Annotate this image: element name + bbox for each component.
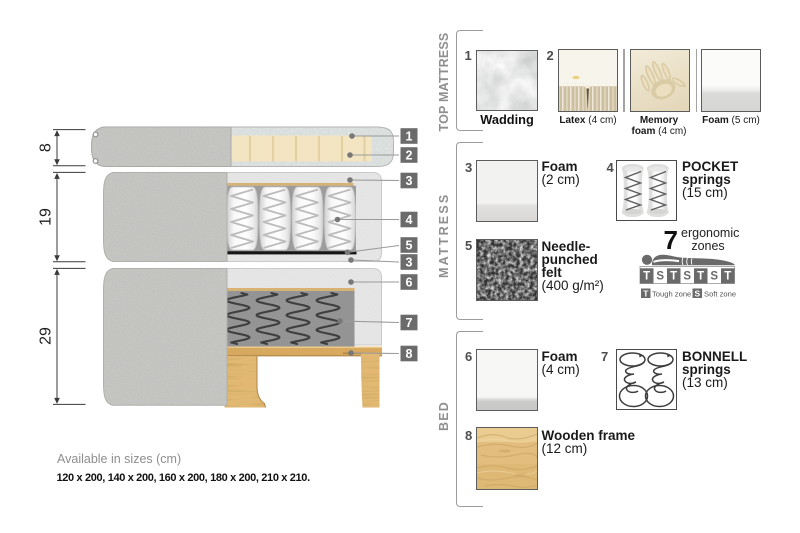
svg-text:1: 1 (406, 130, 413, 144)
svg-text:S: S (710, 271, 718, 283)
svg-text:2: 2 (406, 149, 413, 163)
svg-text:Tough zone: Tough zone (652, 289, 691, 298)
svg-text:T: T (697, 271, 704, 283)
svg-text:3: 3 (406, 256, 413, 270)
svg-text:8: 8 (406, 347, 413, 361)
svg-text:Soft zone: Soft zone (704, 289, 736, 298)
svg-text:S: S (683, 271, 691, 283)
svg-text:S: S (656, 271, 664, 283)
svg-text:T: T (643, 271, 650, 283)
svg-text:4: 4 (406, 213, 413, 227)
svg-text:T: T (724, 271, 731, 283)
svg-text:8: 8 (38, 143, 55, 152)
svg-text:7: 7 (406, 316, 413, 330)
svg-text:T: T (670, 271, 677, 283)
svg-text:19: 19 (38, 208, 55, 226)
svg-text:29: 29 (38, 327, 55, 345)
svg-text:T: T (643, 288, 649, 298)
svg-text:5: 5 (406, 239, 413, 253)
svg-text:6: 6 (406, 276, 413, 290)
svg-text:3: 3 (406, 174, 413, 188)
svg-text:S: S (694, 288, 700, 298)
